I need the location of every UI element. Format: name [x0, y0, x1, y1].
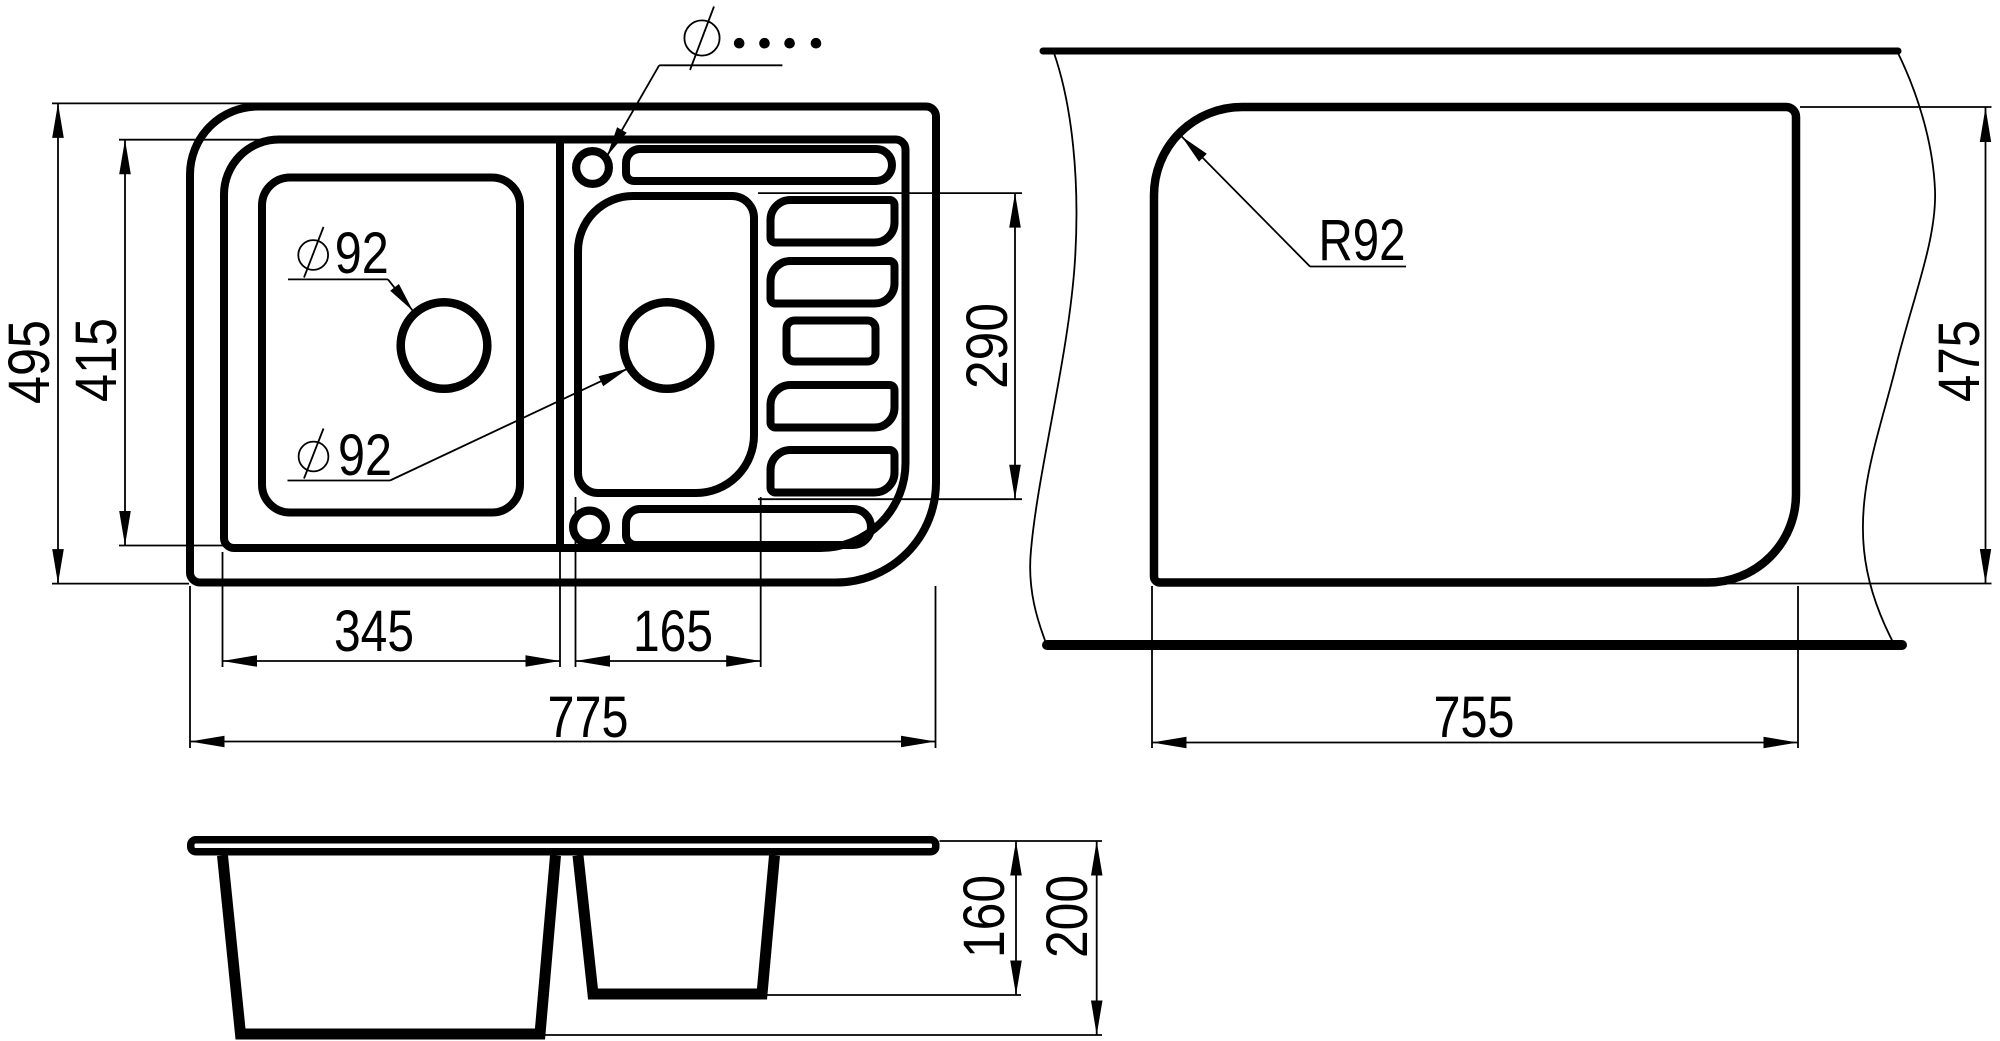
svg-text:415: 415	[64, 318, 129, 402]
svg-text:200: 200	[1035, 875, 1100, 958]
svg-text:165: 165	[633, 599, 713, 664]
svg-text:92: 92	[335, 221, 389, 286]
svg-text:160: 160	[952, 875, 1017, 958]
svg-text:345: 345	[334, 599, 414, 664]
svg-text:755: 755	[1434, 685, 1515, 750]
svg-text:775: 775	[548, 685, 629, 750]
svg-text:475: 475	[1927, 320, 1992, 402]
svg-text:92: 92	[338, 423, 392, 488]
svg-text:R92: R92	[1319, 208, 1406, 273]
svg-text:290: 290	[955, 303, 1020, 389]
svg-text:495: 495	[0, 320, 62, 404]
